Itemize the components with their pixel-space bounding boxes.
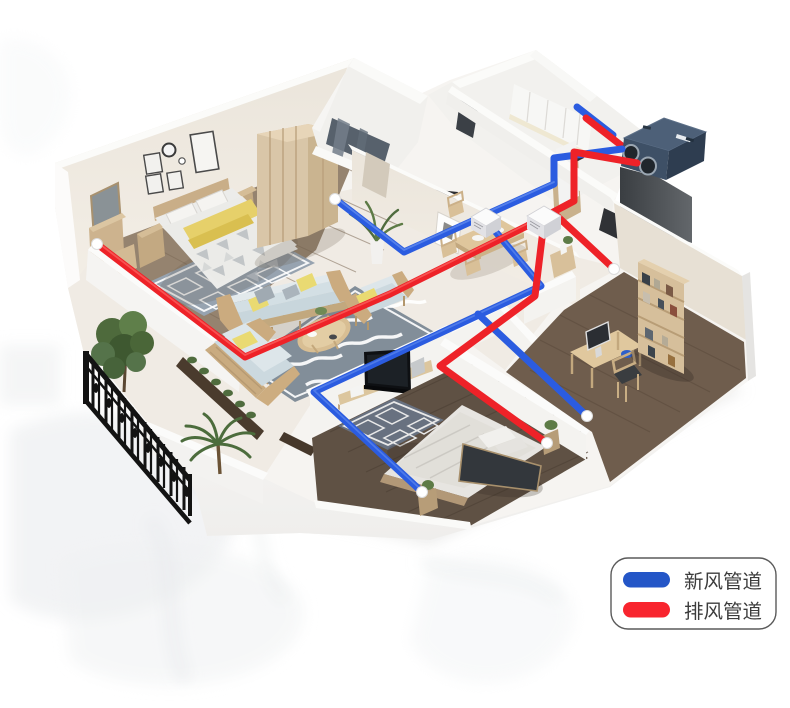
svg-text:排风管道: 排风管道 xyxy=(684,601,762,623)
svg-text:新风管道: 新风管道 xyxy=(684,571,762,593)
